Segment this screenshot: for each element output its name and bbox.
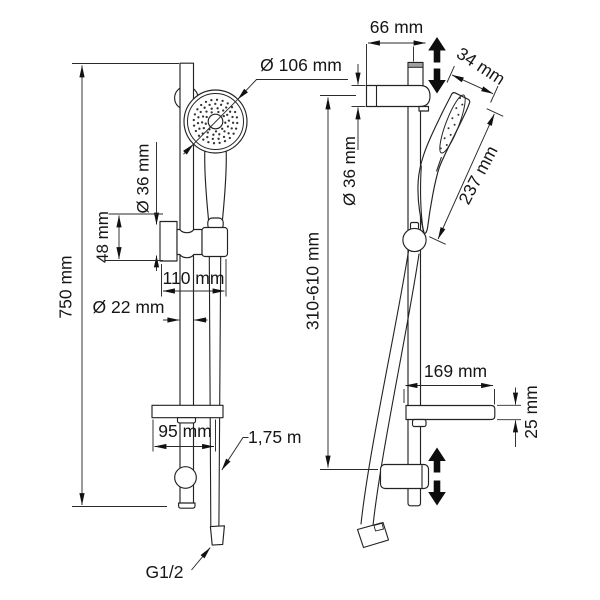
side-soap-dish	[406, 406, 495, 420]
front-hose	[209, 257, 211, 526]
dim-label-soap-dish-thickness: 25 mm	[521, 385, 541, 438]
dim-label-rail-diameter: Ø 22 mm	[93, 297, 165, 317]
dim-label-soap-dish-depth: 169 mm	[424, 361, 487, 381]
front-hose-connector	[210, 526, 224, 545]
dim-label-rail-length: 750 mm	[56, 255, 76, 318]
side-bottom-wall-bracket	[381, 465, 429, 489]
front-holder-cradle	[202, 228, 228, 257]
dim-label-soap-dish-width: 95 mm	[158, 421, 211, 441]
side-hand-shower	[418, 93, 470, 234]
front-soap-dish	[152, 405, 223, 417]
side-slide-rail	[408, 86, 421, 506]
side-holder-knob	[403, 228, 426, 251]
front-bottom-wall-mount	[175, 467, 197, 489]
dim-label-holder-diameter: Ø 36 mm	[134, 144, 153, 214]
front-holder-plate	[160, 222, 177, 262]
dim-label-bracket-diameter: Ø 36 mm	[340, 136, 359, 206]
dim-label-mounting-range: 310-610 mm	[303, 232, 323, 330]
side-bracket-collar	[419, 107, 429, 112]
side-soap-dish-clamp	[413, 420, 427, 427]
front-rail-end-cap	[179, 503, 195, 508]
technical-drawing-page: 750 mm Ø 106 mm Ø 36 mm 48 mm 110 mm Ø 2…	[0, 0, 600, 600]
dim-label-hand-shower-length: 237 mm	[454, 142, 501, 207]
dim-label-thread: G1/2	[146, 562, 184, 582]
side-mount-post-cap	[408, 63, 423, 68]
slide-adjust-down-arrow-icon	[428, 69, 446, 94]
dim-label-holder-width: 110 mm	[163, 268, 225, 288]
front-hose	[219, 257, 221, 526]
front-holder-ring	[177, 230, 202, 258]
side-hose-connector	[358, 523, 389, 548]
slide-adjust-down-arrow-icon	[428, 481, 446, 506]
dim-label-head-diameter: Ø 106 mm	[260, 55, 342, 75]
front-handle	[205, 151, 227, 221]
dim-label-head-thickness: 34 mm	[453, 43, 509, 89]
slide-adjust-up-arrow-icon	[428, 37, 446, 63]
dim-label-hose-length: 1,75 m	[248, 427, 302, 447]
slide-adjust-up-arrow-icon	[428, 448, 446, 473]
dim-label-holder-height: 48 mm	[93, 211, 112, 263]
shower-set-dimensional-drawing: 750 mm Ø 106 mm Ø 36 mm 48 mm 110 mm Ø 2…	[0, 0, 600, 600]
side-view: 66 mm Ø 36 mm 310-610 mm 34 mm 237 mm 16…	[303, 17, 542, 548]
dim-label-wall-distance: 66 mm	[370, 17, 423, 37]
